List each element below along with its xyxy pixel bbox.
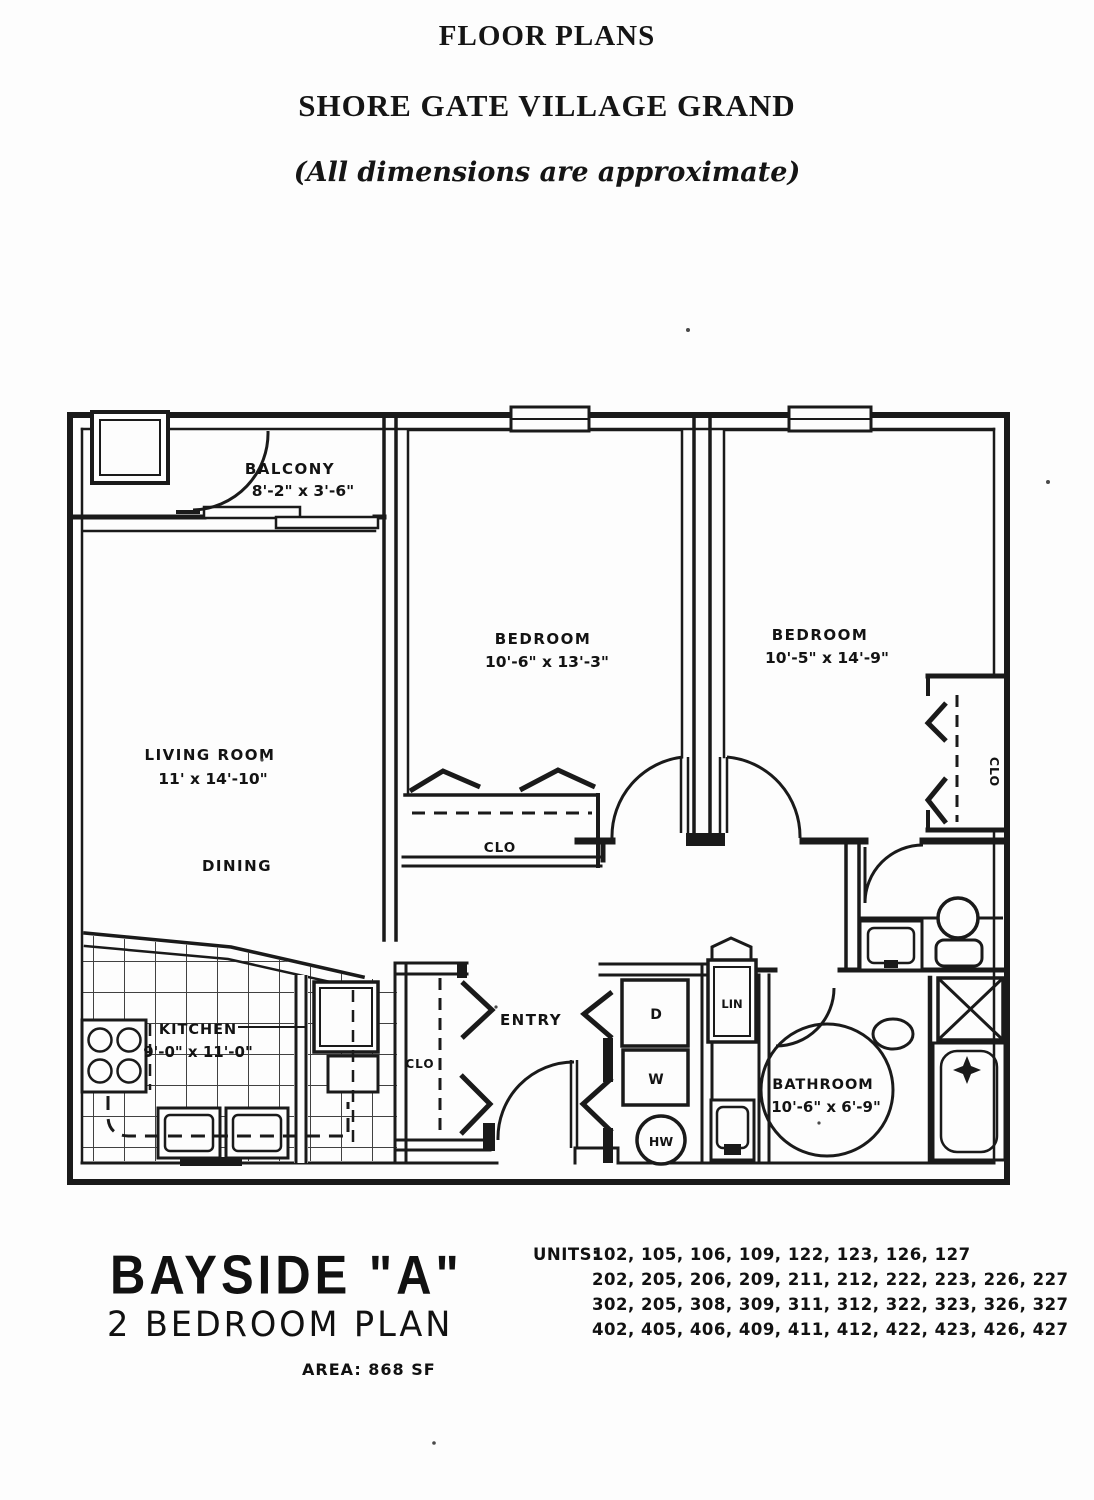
water-heater-label: HW: [649, 1134, 673, 1149]
bedroom2-closet-bifold-icon: [928, 695, 957, 823]
bedroom1-label: BEDROOM: [495, 630, 592, 648]
bedroom1-door-arc: [612, 757, 688, 838]
washer-label: W: [648, 1072, 663, 1088]
units-label: UNITS:: [533, 1242, 592, 1267]
toilet-room-door-arc: [865, 845, 923, 903]
plan-type-subtitle: 2 BEDROOM PLAN: [107, 1305, 453, 1345]
living-room-dims: 11' x 14'-10": [158, 770, 268, 788]
dining-label: DINING: [202, 857, 272, 875]
bedroom1-closet-label: CLO: [484, 840, 517, 856]
linen-closet-box: [708, 938, 756, 1042]
bedroom2-dims: 10'-5" x 14'-9": [765, 649, 889, 667]
pedestal-sink-icon: [936, 898, 982, 966]
entry-label: ENTRY: [500, 1011, 562, 1029]
scanned-floor-plan-page: FLOOR PLANS SHORE GATE VILLAGE GRAND (Al…: [0, 0, 1094, 1500]
bedroom2-closet-label: CLO: [987, 757, 1002, 787]
units-line-4: 402, 405, 406, 409, 411, 412, 422, 423, …: [592, 1317, 1069, 1342]
balcony-dims: 8'-2" x 3'-6": [252, 482, 354, 500]
balcony-sliding-door-icon: [204, 507, 378, 528]
bedroom2-window-icon: [789, 407, 871, 431]
dryer-label: D: [650, 1007, 662, 1023]
entry-front-door-arc: [498, 1060, 577, 1148]
units-line-3: 302, 205, 308, 309, 311, 312, 322, 323, …: [592, 1292, 1069, 1317]
stove-icon: [82, 1020, 146, 1092]
plan-name-title: BAYSIDE "A": [110, 1244, 463, 1307]
balcony-label: BALCONY: [245, 460, 335, 478]
toilet-icon-2: [711, 1100, 754, 1160]
entry-closet-bifold-icon: [440, 978, 492, 1134]
bathroom-dims: 10'-6" x 6'-9": [771, 1098, 881, 1116]
units-line-1: 102, 105, 106, 109, 122, 123, 126, 127: [592, 1242, 971, 1267]
living-room-label: LIVING ROOM: [145, 746, 276, 764]
bedroom2-door-arc: [720, 757, 800, 838]
kitchen-dims: 9'-0" x 11'-0": [143, 1043, 253, 1061]
units-line-2: 202, 205, 206, 209, 211, 212, 222, 223, …: [592, 1267, 1069, 1292]
tub-drain-sparkle-icon: [953, 1056, 981, 1084]
bedroom2-label: BEDROOM: [772, 626, 869, 644]
bath-sink-basin-icon: [873, 1019, 913, 1049]
toilet-icon: [860, 921, 922, 970]
bathroom-door-arc: [776, 988, 834, 1046]
bedroom1-dims: 10'-6" x 13'-3": [485, 653, 609, 671]
entry-closet-label: CLO: [405, 1057, 434, 1071]
bedroom1-closet-bifold-icon: [410, 770, 595, 813]
kitchen-label: KITCHEN: [159, 1022, 237, 1038]
units-list: UNITS: 102, 105, 106, 109, 122, 123, 126…: [533, 1242, 1069, 1342]
bathroom-label: BATHROOM: [772, 1077, 873, 1093]
vent-pentagon-icon: [712, 938, 751, 961]
bedroom1-window-icon: [511, 407, 589, 431]
linen-label: LIN: [721, 997, 742, 1011]
plan-area-text: AREA: 868 SF: [302, 1360, 436, 1379]
